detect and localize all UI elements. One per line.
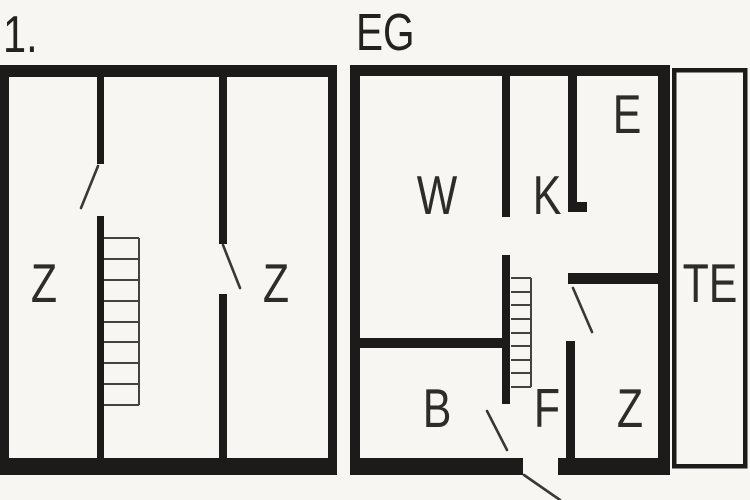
wall-upper-partition-a-bottom — [97, 216, 104, 460]
wall-upper-partition-b-bottom — [219, 294, 227, 460]
wall-ke-foot — [568, 202, 587, 212]
door-swing-icon — [573, 288, 592, 332]
door-swing-icon — [223, 245, 240, 288]
room-bathroom: B — [423, 378, 452, 439]
wall-upper-partition-b-top — [219, 75, 227, 244]
wall-z-top — [568, 273, 658, 284]
wall-central — [502, 255, 510, 404]
room-label: K — [533, 165, 562, 226]
wall-z-left — [566, 341, 575, 458]
wall-ground-left — [350, 65, 360, 475]
room-label: Z — [617, 378, 643, 439]
room-label: F — [534, 378, 560, 439]
room-entry: E — [613, 84, 642, 145]
floor-title-ground: EG — [356, 3, 415, 61]
room-label: TE — [683, 253, 738, 314]
floor-plan-drawing: 1. — [0, 0, 750, 500]
room-bedroom-right: Z — [263, 253, 289, 314]
room-label: B — [423, 378, 452, 439]
wall-ground-bottom-left — [350, 458, 523, 475]
wall-ground-bottom-right — [558, 458, 670, 475]
door-swing-icon — [81, 166, 98, 208]
room-bedroom-left: Z — [31, 253, 57, 314]
wall-ground-top — [350, 65, 670, 76]
room-living: W — [417, 165, 458, 226]
room-bedroom-ground: Z — [617, 378, 643, 439]
wall-upper-partition-a-top — [97, 75, 104, 164]
staircase-icon — [511, 278, 531, 387]
floor-title-ground-text: EG — [356, 3, 415, 61]
floor-plan-canvas: 1. — [0, 0, 750, 500]
door-swing-icon — [487, 411, 507, 450]
wall-bathroom-top — [358, 338, 502, 348]
wall-ground-right — [658, 65, 670, 475]
floor-title-upper-text: 1. — [3, 5, 38, 64]
room-label: Z — [263, 253, 289, 314]
room-label: E — [613, 84, 642, 145]
wall-upper-right — [328, 65, 337, 475]
wall-ke-partition — [568, 75, 577, 203]
wall-wk-partition — [502, 75, 510, 217]
wall-upper-bottom — [0, 458, 337, 475]
staircase-icon — [104, 238, 139, 405]
upper-floor-plan: 1. — [0, 5, 337, 475]
room-terrace: TE — [683, 253, 738, 314]
wall-upper-left — [0, 65, 9, 475]
room-hallway: F — [534, 378, 560, 439]
room-label: Z — [31, 253, 57, 314]
floor-title-upper: 1. — [3, 5, 38, 64]
wall-upper-top — [0, 65, 337, 77]
ground-floor-plan: EG — [350, 3, 745, 500]
room-label: W — [417, 165, 458, 226]
room-kitchen: K — [533, 165, 562, 226]
entrance-door-swing-icon — [524, 475, 560, 500]
